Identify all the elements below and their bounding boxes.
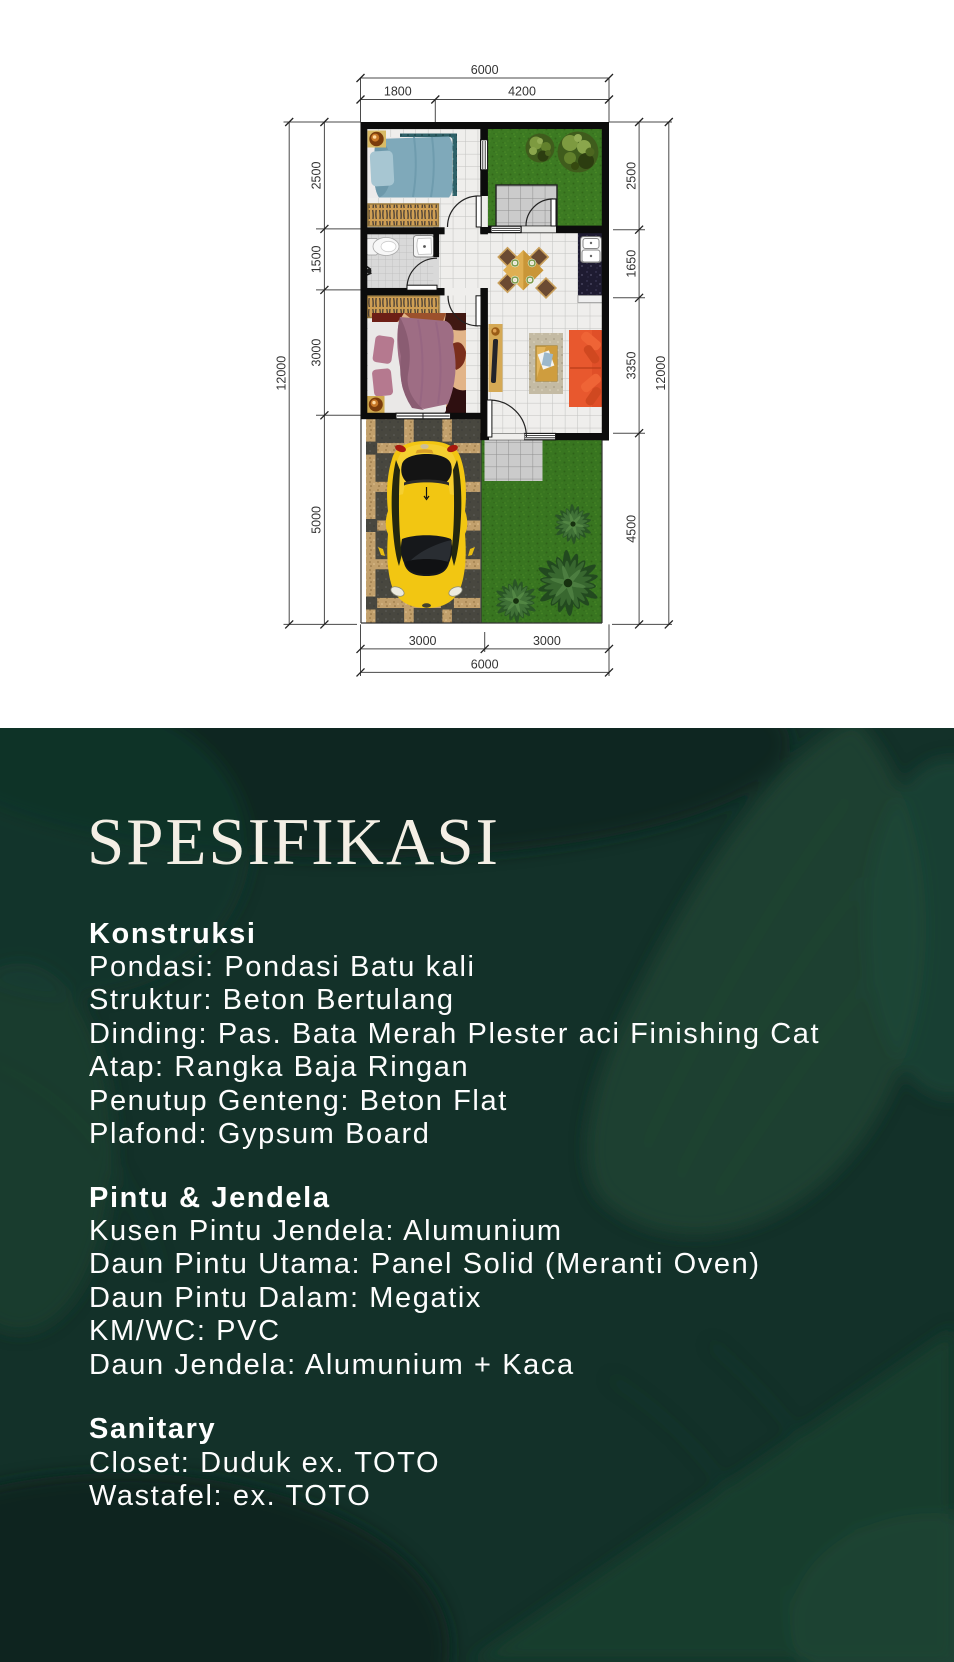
svg-text:3350: 3350 bbox=[624, 352, 638, 380]
svg-text:1500: 1500 bbox=[310, 245, 324, 273]
svg-text:2500: 2500 bbox=[624, 162, 638, 190]
svg-text:3000: 3000 bbox=[409, 634, 437, 648]
svg-text:3000: 3000 bbox=[310, 339, 324, 367]
svg-text:12000: 12000 bbox=[654, 356, 668, 391]
svg-text:1800: 1800 bbox=[384, 85, 412, 99]
svg-text:2500: 2500 bbox=[310, 162, 324, 190]
svg-text:4500: 4500 bbox=[624, 515, 638, 543]
svg-text:6000: 6000 bbox=[471, 63, 499, 77]
svg-text:12000: 12000 bbox=[275, 356, 289, 391]
svg-text:3000: 3000 bbox=[533, 634, 561, 648]
svg-text:5000: 5000 bbox=[310, 506, 324, 534]
svg-text:6000: 6000 bbox=[471, 658, 499, 672]
svg-text:1650: 1650 bbox=[624, 250, 638, 278]
svg-text:4200: 4200 bbox=[508, 85, 536, 99]
